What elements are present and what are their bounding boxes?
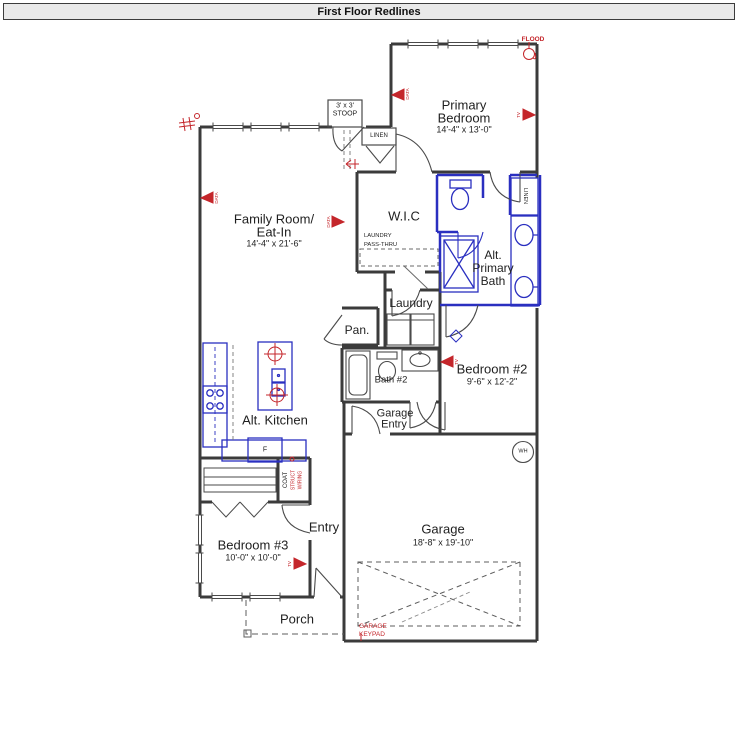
tv-marker-label: TV (517, 112, 522, 118)
hose-bib-marker (179, 114, 200, 132)
bedroom2-dims: 9'-6" x 12'-2" (467, 378, 517, 387)
alt-kitchen-label: Alt. Kitchen (242, 414, 308, 427)
porch-label: Porch (280, 613, 314, 626)
laundry-pass-thru-label: LAUNDRY (364, 234, 392, 240)
garage-entry-label: Entry (381, 420, 407, 431)
door-redline-mark (346, 159, 359, 169)
tv-marker-label: TV (455, 359, 460, 365)
washer-dryer (387, 314, 434, 345)
tv-marker (441, 356, 453, 367)
alt-kitchen-fixtures (203, 342, 306, 462)
laundry-label: Laundry (389, 297, 432, 309)
linen-bath-label: LINEN (521, 188, 527, 204)
garage-label: Garage (421, 523, 464, 536)
alt-primary-bath-label: Bath (481, 275, 506, 287)
toilet-tank (450, 180, 471, 188)
data-port-marker (392, 89, 404, 100)
laundry-pass-thru-zone (360, 249, 438, 289)
struct-wiring-annotation: STRUCT (292, 470, 297, 490)
family-room-label: Eat-In (257, 226, 292, 239)
toilet-tank (377, 352, 397, 359)
bedroom2-label: Bedroom #2 (457, 363, 528, 376)
data-port-marker-label: DATA (215, 192, 220, 203)
coat-closet-label: COAT (283, 472, 289, 488)
tv-marker (294, 558, 306, 569)
toilet-bowl (452, 189, 469, 210)
stoop-label: 3' x 3' (336, 103, 354, 110)
closet-shelving (204, 468, 276, 517)
pantry-label: Pan. (345, 324, 370, 336)
alt-primary-bath-label: Alt. (484, 249, 501, 261)
bifold-doors (212, 502, 268, 517)
alt-primary-bath-label: Primary (472, 262, 513, 274)
wic-label: W.I.C (388, 210, 420, 223)
struct-wiring-annotation: WIRING (299, 471, 304, 490)
water-heater-label: WH (518, 449, 527, 455)
vanity-sink-1 (515, 225, 533, 246)
garage-dims: 18'-8" x 19'-10" (413, 539, 473, 548)
flood-annotation: FLOOD (522, 37, 545, 44)
laundry-pass-thru-label: PASS-THRU (364, 243, 397, 249)
entry-label: Entry (309, 521, 339, 534)
keypad-leader-line (402, 592, 470, 622)
data-port-marker (201, 192, 213, 203)
primary-bedroom-dims: 14'-4" x 13'-0" (436, 126, 491, 135)
page: { "window": { "title": "First Floor Redl… (0, 0, 738, 746)
stoop-label: STOOP (333, 111, 357, 118)
bath2-label: Bath #2 (375, 375, 408, 385)
primary-bedroom-label: Bedroom (438, 112, 491, 125)
sink-bowl (410, 354, 430, 367)
garage-keypad-annotation: KEYPAD (359, 632, 385, 639)
bedroom3-label: Bedroom #3 (218, 539, 289, 552)
data-port-marker-label: DATA (327, 216, 332, 227)
title-bar: First Floor Redlines (3, 3, 735, 20)
fridge-label: F (263, 447, 267, 454)
island-sink (272, 369, 285, 382)
data-port-marker (332, 216, 344, 227)
tv-marker (523, 109, 535, 120)
linen-top-label: LINEN (370, 133, 388, 139)
vanity-counter (511, 216, 538, 306)
bedroom3-dims: 10'-0" x 10'-0" (225, 554, 280, 563)
data-port-marker-label: DATA (406, 88, 411, 99)
garage-door-zone (358, 562, 520, 626)
vanity-sink-2 (515, 277, 533, 298)
tv-marker-label: TV (288, 561, 293, 567)
garage-keypad-annotation: GARAGE (359, 624, 387, 631)
family-room-dims: 14'-4" x 21'-6" (246, 240, 301, 249)
page-title: First Floor Redlines (317, 6, 420, 18)
